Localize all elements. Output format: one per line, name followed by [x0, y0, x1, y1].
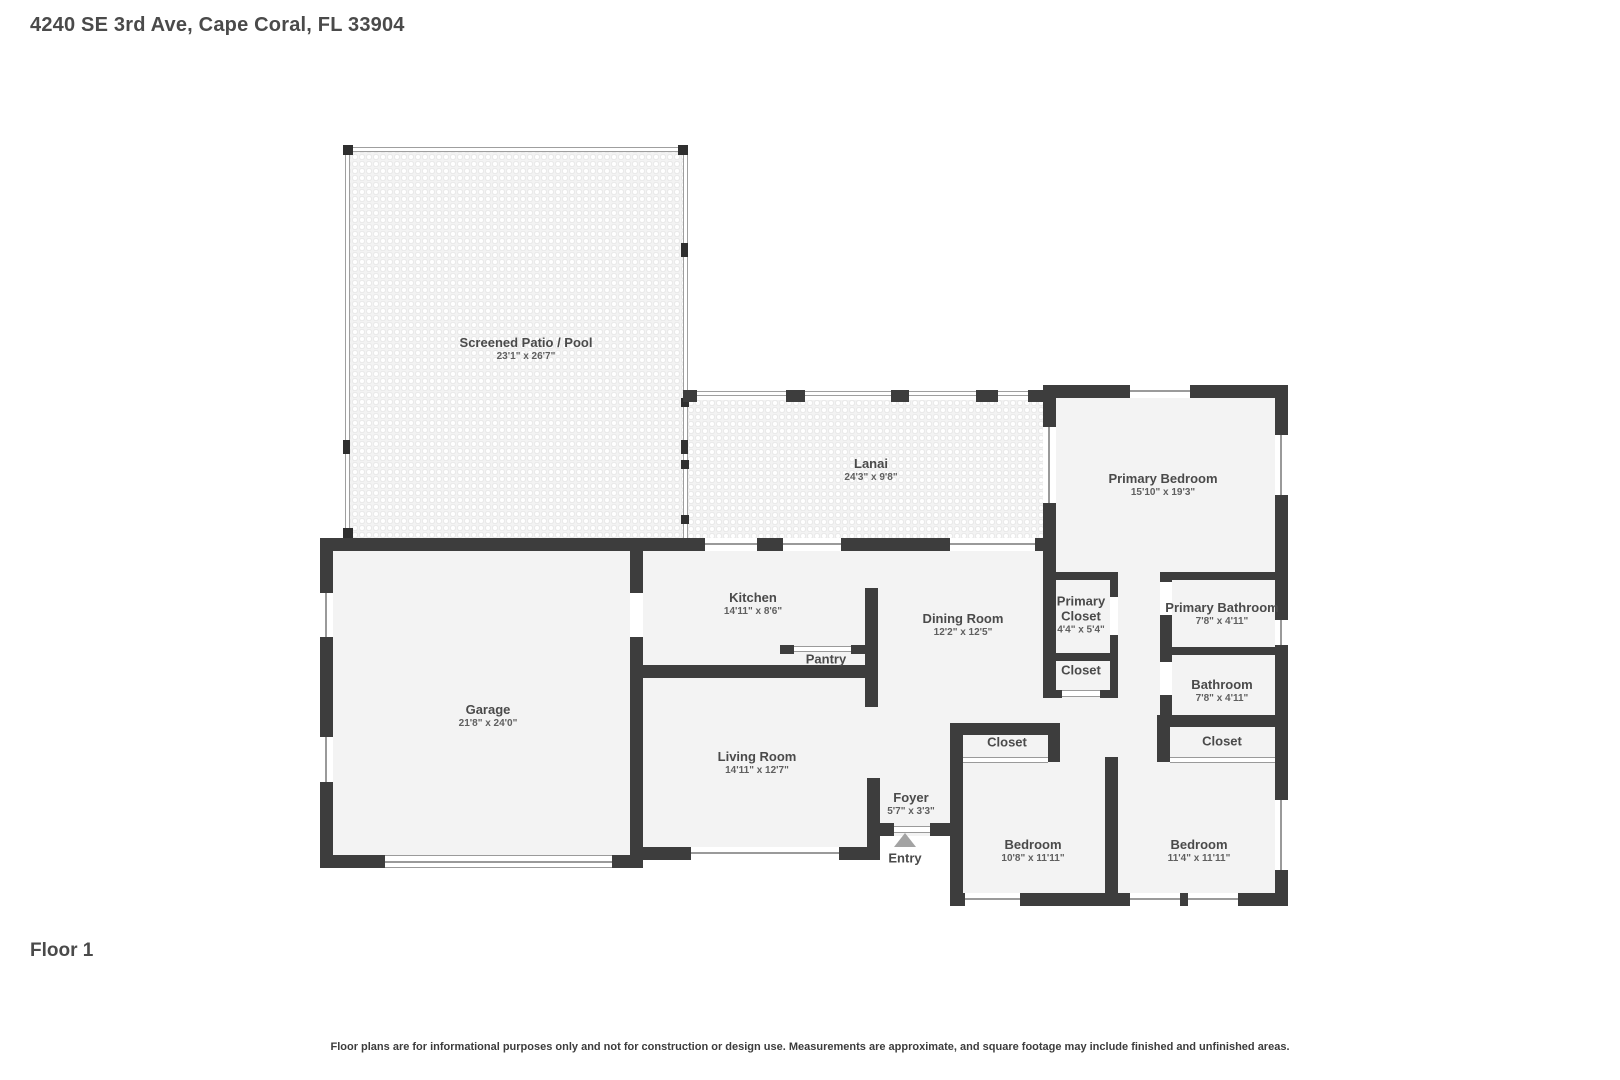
wall — [865, 588, 878, 707]
wall — [952, 723, 1060, 735]
room-label-closet-bedroom-right: Closet — [1202, 734, 1242, 749]
window — [1130, 385, 1190, 398]
wall — [1160, 572, 1288, 580]
window — [320, 737, 333, 782]
entry-label: Entry — [888, 851, 921, 866]
window — [1130, 893, 1180, 906]
screen-post — [343, 145, 353, 155]
room-label-bedroom-right: Bedroom 11'4" x 11'11" — [1168, 837, 1231, 865]
room-label-primary-bathroom: Primary Bathroom 7'8" x 4'11" — [1165, 600, 1278, 628]
room-label-garage: Garage 21'8" x 24'0" — [459, 702, 518, 730]
screen-wall — [345, 147, 350, 538]
wall — [878, 823, 894, 836]
window — [691, 847, 839, 860]
closet-door — [1170, 757, 1275, 763]
floor-label: Floor 1 — [30, 940, 93, 962]
wall — [320, 538, 333, 868]
wall — [976, 390, 998, 402]
window — [783, 538, 841, 551]
wall — [1160, 647, 1288, 655]
screen-post — [681, 515, 689, 524]
room-label-foyer: Foyer 5'7" x 3'3" — [887, 790, 935, 818]
room-label-dining-room: Dining Room 12'2" x 12'5" — [923, 611, 1004, 639]
wall — [1043, 572, 1118, 580]
window — [1188, 893, 1238, 906]
wall — [950, 723, 963, 906]
wall — [1105, 757, 1118, 906]
wall — [891, 390, 909, 402]
room-label-bedroom-left: Bedroom 10'8" x 11'11" — [1001, 837, 1064, 865]
closet-door — [963, 757, 1048, 763]
room-label-primary-bedroom: Primary Bedroom 15'10" x 19'3" — [1108, 471, 1217, 499]
wall — [643, 665, 878, 678]
wall — [1157, 715, 1170, 762]
room-label-closet-bedroom-left: Closet — [987, 735, 1027, 750]
screen-post — [681, 460, 689, 469]
wall — [780, 645, 794, 654]
window — [965, 893, 1020, 906]
room-label-primary-closet: Primary Closet 4'4" x 5'4" — [1048, 594, 1114, 637]
window — [1043, 427, 1056, 503]
wall — [1048, 723, 1060, 762]
room-label-living-room: Living Room 14'11" x 12'7" — [718, 749, 797, 777]
window — [1275, 435, 1288, 495]
room-label-lanai: Lanai 24'3" x 9'8" — [844, 456, 897, 484]
room-label-screened-patio: Screened Patio / Pool 23'1" x 26'7" — [460, 335, 593, 363]
screen-post — [343, 528, 353, 538]
room-label-pantry: Pantry — [806, 652, 846, 667]
garage-door — [385, 855, 612, 868]
disclaimer-text: Floor plans are for informational purpos… — [0, 1041, 1620, 1053]
floor-plan-page: 4240 SE 3rd Ave, Cape Coral, FL 33904 — [0, 0, 1620, 1080]
entry-door — [894, 826, 930, 833]
door-opening — [630, 593, 643, 637]
window — [1275, 800, 1288, 870]
wall — [1028, 390, 1043, 402]
wall — [1043, 690, 1062, 698]
window — [320, 593, 333, 637]
wall — [1043, 653, 1118, 661]
wall — [1157, 715, 1288, 727]
wall — [786, 390, 805, 402]
kitchen-living-area — [643, 538, 878, 860]
screen-wall — [683, 147, 688, 390]
room-label-closet-hall: Closet — [1061, 663, 1101, 678]
screen-post — [681, 440, 688, 454]
screen-post — [343, 440, 350, 454]
window — [705, 538, 757, 551]
screen-post — [678, 145, 688, 155]
screen-post — [681, 243, 688, 257]
room-label-kitchen: Kitchen 14'11" x 8'6" — [724, 590, 782, 618]
wall — [320, 538, 1056, 551]
wall — [630, 538, 643, 868]
wall — [683, 390, 697, 402]
entry-arrow-icon — [894, 833, 916, 847]
closet-door — [1062, 690, 1100, 697]
window — [950, 538, 1035, 551]
room-label-bathroom: Bathroom 7'8" x 4'11" — [1191, 677, 1252, 705]
screen-wall — [345, 147, 683, 152]
page-title: 4240 SE 3rd Ave, Cape Coral, FL 33904 — [30, 14, 405, 37]
wall — [1100, 690, 1118, 698]
door-opening — [1160, 662, 1172, 695]
